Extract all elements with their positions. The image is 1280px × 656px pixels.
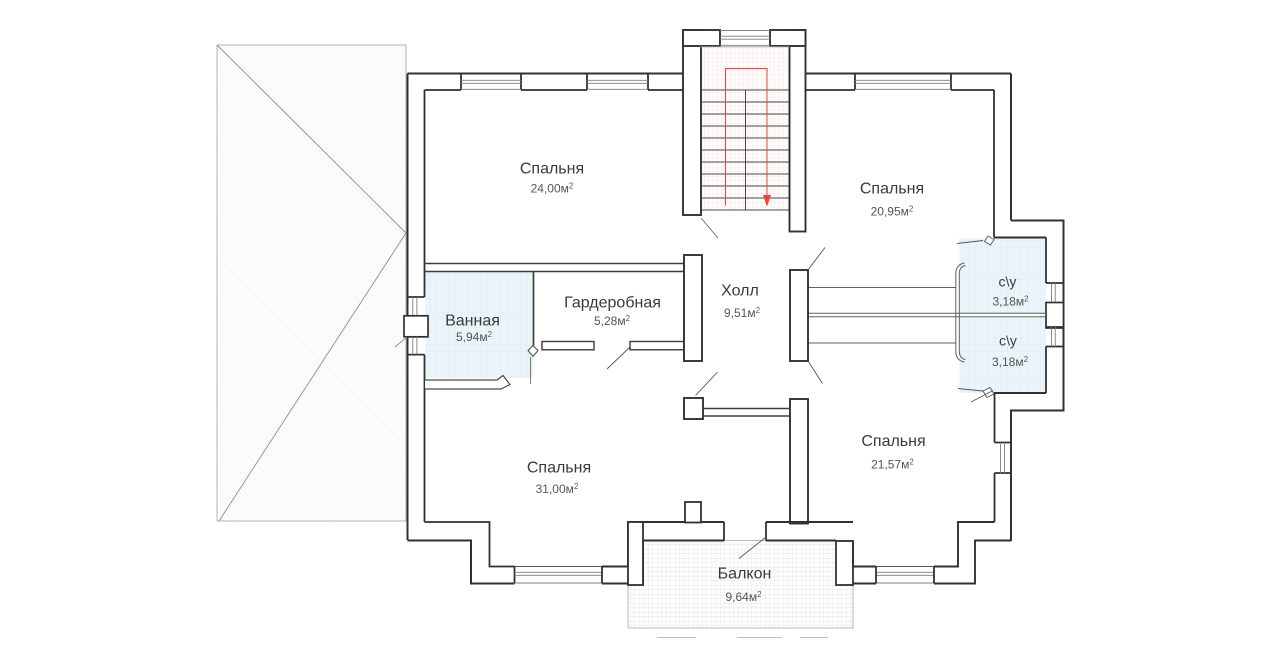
svg-text:Ванная: Ванная	[445, 313, 500, 330]
svg-text:Балкон: Балкон	[718, 566, 772, 583]
svg-text:31,00м2: 31,00м2	[536, 482, 579, 496]
svg-text:5,28м2: 5,28м2	[594, 314, 631, 328]
svg-text:9,64м2: 9,64м2	[725, 590, 762, 604]
svg-text:20,95м2: 20,95м2	[871, 205, 914, 219]
svg-text:9,51м2: 9,51м2	[724, 306, 761, 320]
svg-text:Спальня: Спальня	[860, 181, 924, 198]
svg-text:5,94м2: 5,94м2	[456, 330, 493, 344]
svg-text:3,18м2: 3,18м2	[992, 295, 1029, 309]
svg-text:Спальня: Спальня	[527, 460, 591, 477]
svg-text:Спальня: Спальня	[861, 433, 925, 450]
svg-text:Спальня: Спальня	[520, 161, 584, 178]
svg-text:с\у: с\у	[999, 333, 1017, 349]
svg-text:21,57м2: 21,57м2	[871, 458, 914, 472]
svg-text:с\у: с\у	[999, 274, 1017, 290]
svg-text:Холл: Холл	[721, 283, 759, 300]
svg-text:3,18м2: 3,18м2	[992, 355, 1029, 369]
svg-text:24,00м2: 24,00м2	[531, 182, 574, 196]
svg-text:Гардеробная: Гардеробная	[564, 295, 661, 312]
